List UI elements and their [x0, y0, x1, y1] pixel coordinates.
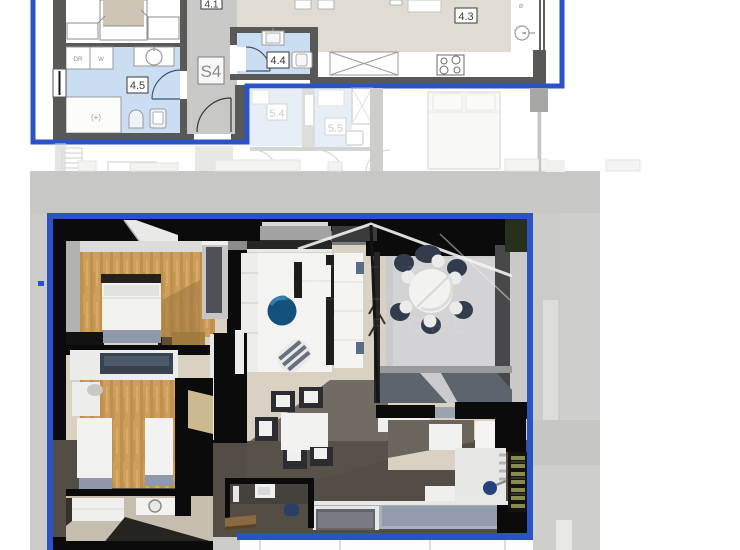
- svg-text:INTERIORE: INTERIORE: [297, 316, 472, 337]
- svg-text:(+): (+): [91, 113, 101, 122]
- svg-text:5.5: 5.5: [328, 123, 343, 135]
- svg-text:5.4: 5.4: [269, 108, 284, 120]
- svg-text:DR: DR: [74, 57, 83, 63]
- svg-text:ø: ø: [519, 3, 524, 10]
- svg-text:COLD: COLD: [263, 255, 457, 312]
- svg-text:4.3: 4.3: [458, 11, 473, 23]
- svg-text:W: W: [98, 57, 104, 63]
- svg-text:4.5: 4.5: [130, 80, 145, 92]
- svg-text:4.1: 4.1: [205, 0, 219, 11]
- svg-text:S4: S4: [201, 62, 222, 81]
- svg-text:4.4: 4.4: [270, 55, 285, 67]
